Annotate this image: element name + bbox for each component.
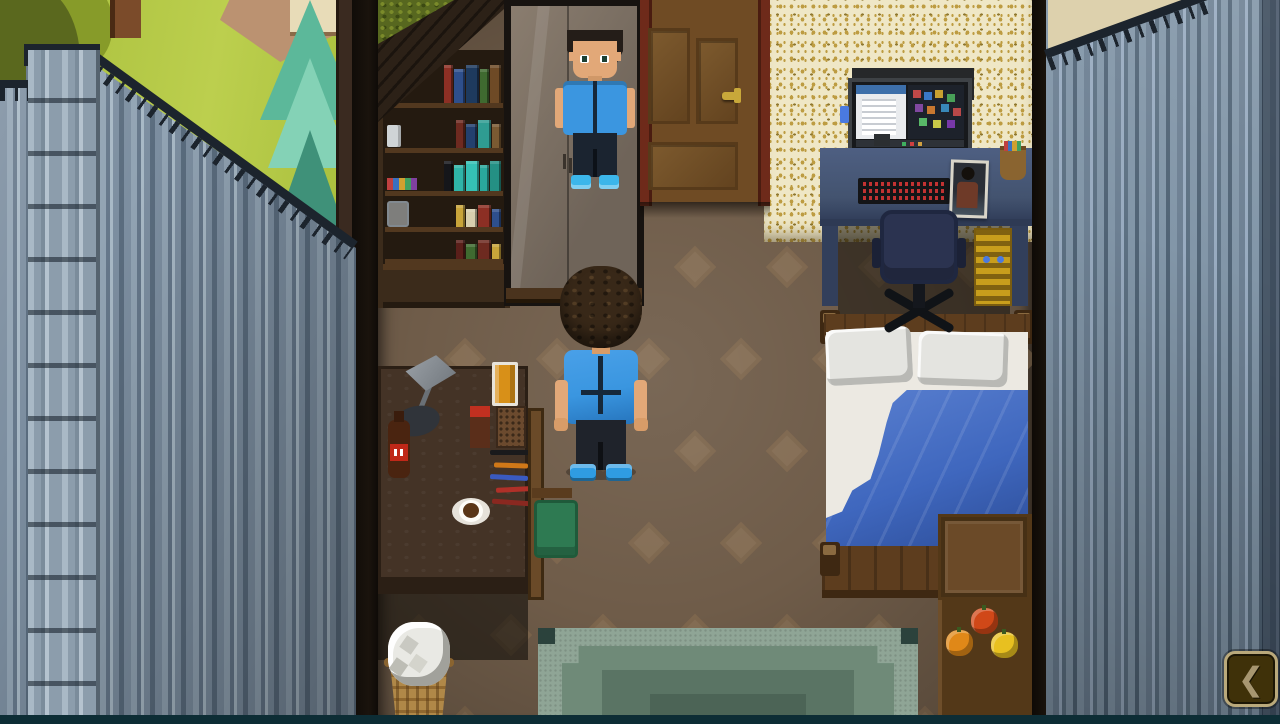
pillar-ribs bbox=[28, 50, 96, 724]
pen bbox=[490, 450, 530, 455]
door-panel bbox=[696, 38, 738, 124]
book-spine bbox=[490, 65, 501, 103]
coffee-liquid bbox=[463, 503, 479, 518]
fruit bbox=[991, 632, 1018, 658]
dresser[interactable] bbox=[938, 514, 1032, 724]
reflection-shirt bbox=[563, 81, 627, 135]
rug-corner bbox=[538, 628, 555, 644]
pillow bbox=[825, 326, 914, 386]
wardrobe-mirror[interactable] bbox=[504, 0, 644, 306]
bottle-label bbox=[390, 444, 408, 461]
yellow-banner bbox=[974, 228, 1012, 306]
door-frame bbox=[758, 0, 770, 206]
book-spine bbox=[492, 244, 501, 259]
shelf-row bbox=[385, 158, 503, 196]
door[interactable] bbox=[640, 0, 770, 220]
book-spine bbox=[480, 165, 489, 191]
mirror-glass bbox=[511, 6, 637, 288]
door-shadow bbox=[640, 202, 770, 218]
pillow bbox=[917, 330, 1009, 387]
key-row bbox=[863, 182, 945, 186]
chair-armrest bbox=[957, 238, 966, 268]
reflection-ear bbox=[616, 52, 621, 61]
shelf-row bbox=[385, 202, 503, 232]
juice-glass bbox=[492, 362, 518, 406]
reflection-eye bbox=[580, 55, 589, 63]
player-character[interactable] bbox=[556, 266, 646, 484]
waste-basket[interactable] bbox=[384, 620, 454, 720]
bedroom bbox=[378, 0, 1032, 724]
book-spine bbox=[456, 120, 465, 148]
book-spines bbox=[456, 205, 501, 227]
book-spine bbox=[454, 165, 465, 191]
reflection-ear bbox=[569, 52, 574, 61]
shirt-placket bbox=[593, 81, 597, 135]
back-button[interactable]: ❮ bbox=[1224, 651, 1278, 707]
blue-clip bbox=[840, 106, 849, 123]
book-spine bbox=[492, 124, 501, 148]
reflection-eye bbox=[600, 55, 609, 63]
door-panel bbox=[648, 142, 738, 190]
book-spine bbox=[454, 69, 465, 103]
reflection-pants bbox=[573, 133, 617, 177]
computer-monitor[interactable] bbox=[848, 78, 972, 154]
bookshelf-base bbox=[383, 264, 505, 302]
book-spine bbox=[466, 161, 479, 191]
potions-item bbox=[387, 178, 417, 190]
fruit bbox=[971, 608, 998, 634]
book-spines bbox=[456, 120, 501, 148]
shelf-row bbox=[385, 117, 503, 153]
book-spine bbox=[466, 124, 477, 148]
mirror-reflection-character bbox=[557, 30, 633, 206]
dresser-top bbox=[941, 517, 1027, 597]
pen bbox=[496, 486, 530, 493]
writing-desk[interactable] bbox=[378, 358, 530, 660]
metal-sheen bbox=[1046, 0, 1280, 724]
keyboard[interactable] bbox=[858, 178, 950, 204]
book-spine bbox=[478, 120, 491, 148]
green-rug bbox=[538, 628, 918, 724]
coffee-cup bbox=[452, 492, 490, 526]
reflection-shoe bbox=[599, 175, 619, 189]
green-cushion bbox=[534, 500, 578, 558]
crumpled-paper bbox=[388, 622, 450, 686]
book-spine bbox=[456, 240, 465, 259]
player-hand bbox=[554, 418, 568, 431]
chair-rung bbox=[532, 488, 572, 498]
book-spine bbox=[492, 209, 501, 227]
shelf-row bbox=[385, 237, 503, 264]
wall-dark-edge bbox=[1262, 0, 1280, 724]
pencil bbox=[494, 462, 528, 468]
book-spine bbox=[466, 65, 479, 103]
chevron-left-icon: ❮ bbox=[1238, 663, 1265, 695]
book-spine bbox=[478, 205, 491, 227]
book-spines bbox=[456, 240, 501, 259]
door-handle bbox=[722, 92, 739, 100]
snack-bar bbox=[470, 406, 490, 448]
monitor-window-dark bbox=[908, 85, 964, 139]
book-spine bbox=[466, 244, 477, 259]
wall-shadow bbox=[352, 0, 380, 724]
desk-leg bbox=[822, 226, 838, 306]
book-spine bbox=[444, 65, 453, 103]
thumbnail-grid bbox=[913, 90, 921, 98]
player-pants bbox=[576, 420, 626, 470]
cola-bottle bbox=[388, 420, 410, 478]
player-shirt bbox=[564, 350, 638, 424]
book-spine bbox=[478, 240, 491, 259]
shirt-seam bbox=[598, 356, 603, 414]
door-panel bbox=[648, 28, 690, 124]
chair-stem bbox=[913, 282, 925, 308]
book-spines bbox=[444, 161, 501, 191]
player-shoe bbox=[570, 464, 596, 481]
food-tray bbox=[496, 406, 526, 448]
monitor-window-light bbox=[856, 85, 906, 139]
corrugated-metal bbox=[1046, 0, 1280, 724]
photo-body bbox=[956, 182, 978, 209]
player-hand bbox=[634, 418, 648, 431]
book-spine bbox=[444, 161, 453, 191]
book-spines bbox=[444, 65, 501, 103]
pen bbox=[490, 474, 528, 481]
shirt-seam bbox=[581, 390, 621, 395]
key-row bbox=[863, 196, 945, 200]
fruit-bowl bbox=[944, 606, 1026, 666]
book-spine bbox=[456, 205, 465, 227]
book-spine bbox=[480, 69, 489, 103]
fruit bbox=[946, 630, 973, 656]
rug-corner bbox=[901, 628, 918, 644]
book-spine bbox=[490, 161, 501, 191]
chair-armrest bbox=[872, 238, 881, 268]
book-spine bbox=[466, 209, 477, 227]
player-shoe bbox=[606, 464, 632, 481]
bed-post bbox=[820, 542, 840, 576]
reflection-shoe bbox=[571, 175, 591, 189]
chair-back bbox=[880, 210, 958, 284]
desk-front bbox=[378, 578, 528, 594]
monitor-taskbar bbox=[856, 140, 964, 147]
pencil-cup bbox=[1000, 146, 1026, 180]
monitor-stand bbox=[874, 134, 890, 146]
fence-edge bbox=[0, 80, 28, 88]
tree-trunk bbox=[110, 0, 141, 38]
pens-group bbox=[490, 450, 530, 506]
office-chair[interactable] bbox=[872, 210, 966, 330]
bottom-letterbox bbox=[0, 715, 1280, 724]
cup-item bbox=[387, 125, 401, 147]
reflection-face bbox=[573, 41, 617, 78]
fence-pillar bbox=[28, 50, 100, 724]
player-hair bbox=[560, 266, 642, 348]
game-screen: ❮ bbox=[0, 0, 1280, 724]
mirror-streak bbox=[511, 6, 550, 288]
key-row bbox=[863, 189, 945, 193]
desk-leg bbox=[1010, 226, 1028, 306]
jar-item bbox=[387, 201, 409, 227]
metal-wall-right bbox=[1032, 0, 1280, 724]
